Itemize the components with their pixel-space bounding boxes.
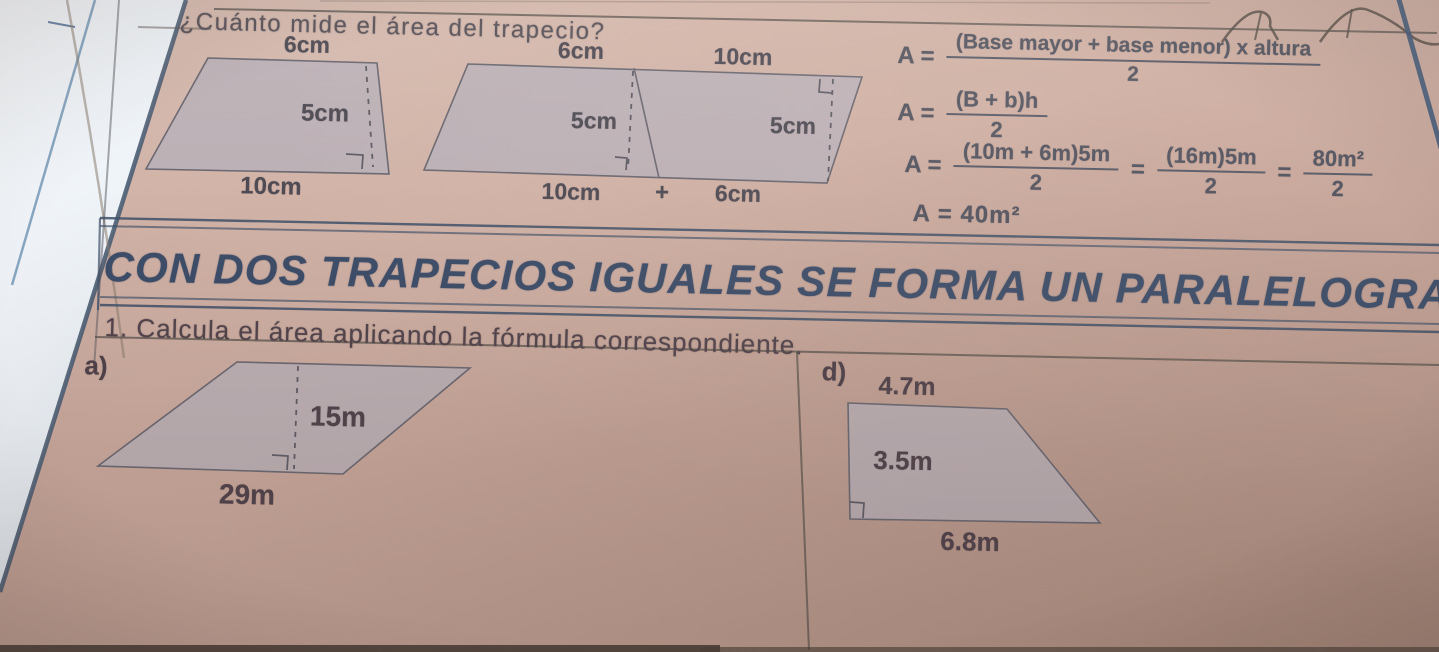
sketch-doodle-right xyxy=(1320,9,1439,45)
worksheet-photo: ¿Cuánto mide el área del trapecio? 6cm 5… xyxy=(0,0,1439,652)
formula-result: A = 40m² xyxy=(912,200,1020,230)
equals-sign: = xyxy=(1131,155,1146,183)
trapezoid-pair-right-top-label: 10cm xyxy=(713,43,772,71)
exercise-d-base-label: 6.8m xyxy=(940,526,1000,558)
formula-lhs: A = xyxy=(904,151,942,180)
formula-general-words: A = (Base mayor + base menor) x altura 2 xyxy=(897,30,1321,90)
fraction-denominator: 2 xyxy=(1127,62,1139,86)
exercise-a-parallelogram-shape xyxy=(98,362,470,474)
trapezoid-pair-bottom-right-label: 6cm xyxy=(715,180,762,208)
trapezoid-pair-left-top-label: 6cm xyxy=(558,37,605,65)
trapezoid-single-top-label: 6cm xyxy=(284,31,331,59)
trapezoid-single-bottom-label: 10cm xyxy=(240,172,302,201)
exercise-a-label: a) xyxy=(84,350,108,382)
fraction: (B + b)h 2 xyxy=(946,87,1048,142)
exercise-d-label: d) xyxy=(821,356,846,388)
trapezoid-pair-right-height-label: 5cm xyxy=(770,112,817,140)
exercise-a-base-label: 29m xyxy=(219,478,276,511)
formula-general-symbols: A = (B + b)h 2 xyxy=(897,86,1048,142)
fraction-numerator: (10m + 6m)5m xyxy=(954,139,1120,171)
fraction-denominator: 2 xyxy=(1204,172,1217,197)
top-right-page-edge-line xyxy=(1398,0,1439,148)
exercise-d-side-label: 3.5m xyxy=(873,445,933,477)
trapezoid-pair-plus-sign: + xyxy=(655,179,670,207)
exercise-a-height-label: 15m xyxy=(310,400,367,433)
fraction-numerator: (16m)5m xyxy=(1157,143,1266,173)
fraction-denominator: 2 xyxy=(1030,169,1043,194)
banner-border-top-outer xyxy=(100,218,1439,245)
trapezoid-single-shape xyxy=(146,58,389,174)
fraction: (Base mayor + base menor) x altura 2 xyxy=(946,31,1320,90)
fraction-denominator: 2 xyxy=(1331,175,1344,200)
bottom-edge-strip-left xyxy=(0,645,720,652)
exercise-d-top-label: 4.7m xyxy=(878,372,936,402)
formula-substitution: A = (10m + 6m)5m 2 = (16m)5m 2 = 80m² 2 xyxy=(904,138,1373,201)
fraction-numerator: (B + b)h xyxy=(947,87,1048,117)
fraction: (10m + 6m)5m 2 xyxy=(953,139,1119,196)
fraction: 80m² 2 xyxy=(1303,146,1373,201)
trapezoid-single-height-label: 5cm xyxy=(301,99,350,128)
fraction: (16m)5m 2 xyxy=(1156,143,1266,198)
formula-lhs: A = xyxy=(897,42,935,71)
trapezoid-pair-left-height-label: 5cm xyxy=(571,107,618,135)
exercise-divider-line xyxy=(797,352,809,650)
top-faint-rule xyxy=(320,1,1210,3)
fraction-numerator: (Base mayor + base menor) x altura xyxy=(947,31,1321,66)
fraction-numerator: 80m² xyxy=(1303,146,1373,176)
equals-sign: = xyxy=(1277,158,1292,186)
formula-lhs: A = xyxy=(897,99,935,128)
bottom-edge-strip-right xyxy=(700,647,1439,652)
trapezoid-pair-bottom-left-label: 10cm xyxy=(541,178,600,206)
fraction-denominator: 2 xyxy=(990,116,1003,141)
